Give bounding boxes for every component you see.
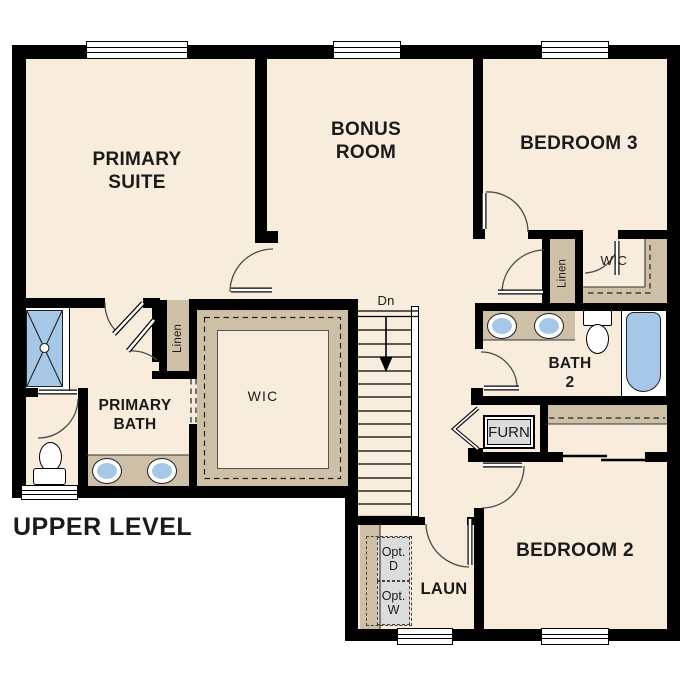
- room-label-wic-primary: WIC: [238, 388, 288, 405]
- room-label-linen-primary: Linen: [166, 308, 190, 368]
- room-label-bath2: BATH 2: [547, 355, 593, 393]
- wall: [345, 629, 680, 641]
- room-label-bedroom3: BEDROOM 3: [499, 132, 659, 155]
- wall: [18, 388, 38, 397]
- sink-icon-bath2-1: [487, 313, 517, 339]
- sink-icon-primary-1: [92, 458, 122, 484]
- wall: [473, 59, 483, 239]
- wall: [189, 424, 197, 487]
- window: [21, 485, 78, 500]
- wall: [152, 371, 189, 379]
- floor-plan: FURN Opt. D Opt. W: [0, 0, 687, 687]
- room-label-bedroom2: BEDROOM 2: [495, 539, 655, 562]
- window: [333, 41, 401, 59]
- bathtub-icon: [626, 312, 661, 392]
- sink-icon-primary-2: [147, 458, 177, 484]
- wall: [575, 239, 583, 309]
- furnace-label: FURN: [487, 419, 531, 445]
- sink-icon-bath2-2: [534, 313, 564, 339]
- wall: [528, 230, 583, 239]
- wall: [471, 452, 563, 462]
- wall: [348, 299, 358, 497]
- wall: [345, 486, 358, 641]
- plan-title: UPPER LEVEL: [13, 512, 192, 543]
- room-label-bonus-room: BONUS ROOM: [321, 118, 411, 164]
- toilet-bowl-bath2: [586, 324, 609, 354]
- wall: [467, 517, 476, 525]
- wall: [189, 299, 197, 379]
- window: [86, 41, 188, 59]
- stair-railing: [411, 306, 419, 517]
- room-label-linen-bedroom3: Linen: [549, 241, 576, 305]
- wall: [645, 452, 667, 462]
- shower-pan: [26, 310, 63, 387]
- room-label-laundry: LAUN: [419, 579, 469, 599]
- wall: [12, 298, 105, 308]
- room-label-wic-bedroom3: WIC: [592, 253, 636, 269]
- wall: [667, 45, 680, 641]
- wic-primary-opening: [189, 379, 197, 424]
- room-label-primary-suite: PRIMARY SUITE: [77, 148, 197, 194]
- wall: [255, 231, 278, 243]
- laundry-appliance-outline: [366, 536, 412, 626]
- wall: [78, 388, 88, 397]
- wall: [475, 311, 483, 349]
- wall: [189, 299, 358, 310]
- wall: [12, 45, 26, 498]
- window: [541, 628, 609, 645]
- furnace-box: FURN: [483, 415, 535, 449]
- wall: [255, 59, 267, 231]
- wall: [471, 396, 667, 405]
- wall: [345, 517, 425, 525]
- wall: [474, 508, 484, 633]
- wall: [618, 230, 667, 239]
- window: [541, 41, 609, 59]
- wall: [473, 228, 485, 239]
- toilet-tank-primary: [33, 468, 66, 485]
- window: [397, 628, 453, 645]
- label-stairs-down: Dn: [371, 293, 401, 309]
- wall: [540, 405, 548, 453]
- room-label-primary-bath: PRIMARY BATH: [90, 397, 180, 435]
- wall: [78, 397, 88, 487]
- bedroom2-closet-shelf: [545, 404, 667, 424]
